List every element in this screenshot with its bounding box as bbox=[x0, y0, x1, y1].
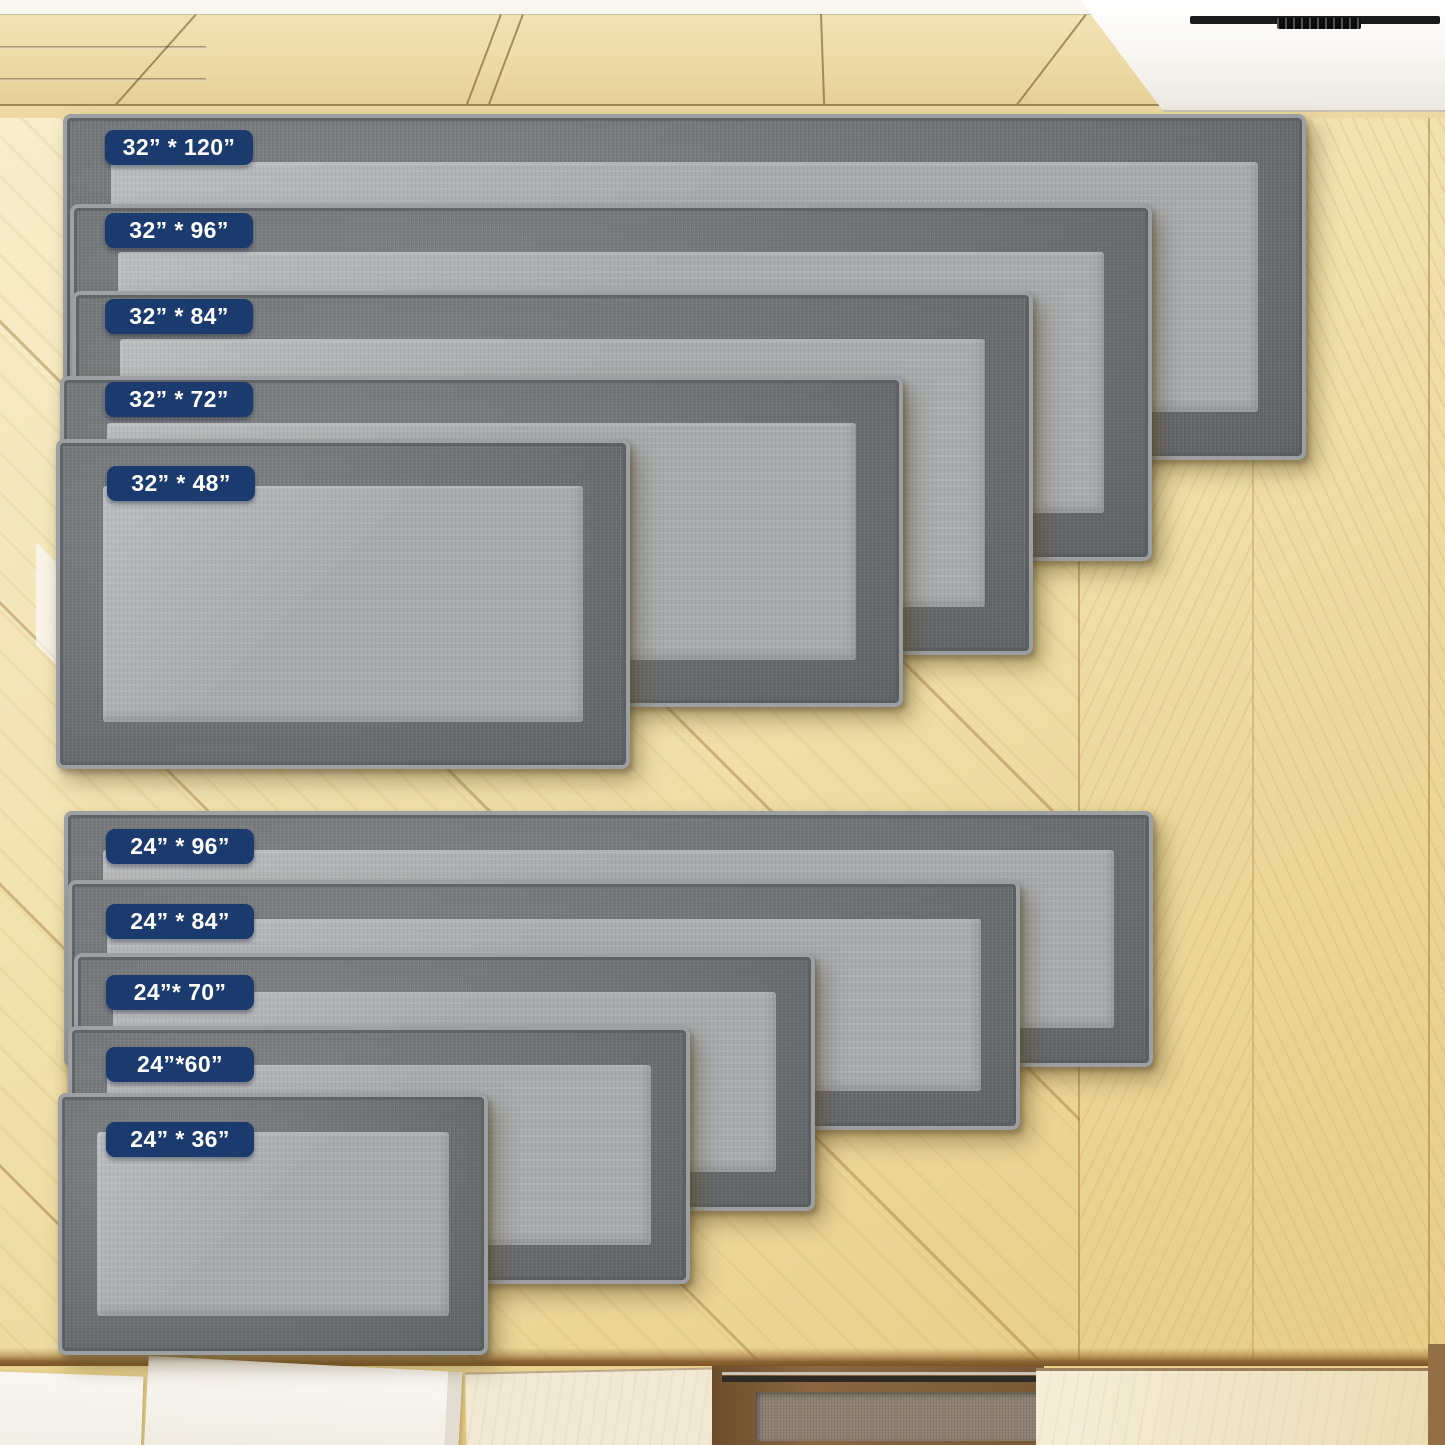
rug-size-chart-image: 32” * 120”32” * 96”32” * 84”32” * 72”32”… bbox=[0, 0, 1445, 1445]
rug-center bbox=[103, 486, 583, 722]
recess-track-gap bbox=[722, 1376, 1044, 1382]
cabinet-door-seam bbox=[820, 14, 825, 106]
rug-24x36: 24” * 36” bbox=[58, 1093, 488, 1355]
cabinet-door-seam bbox=[1010, 14, 1087, 114]
appliance-vent-grille bbox=[1277, 18, 1361, 29]
rug-center bbox=[97, 1132, 449, 1316]
size-badge: 32” * 72” bbox=[105, 382, 253, 417]
drawer-groove bbox=[0, 46, 206, 49]
size-badge: 24” * 96” bbox=[106, 829, 254, 864]
cabinet-door-seam bbox=[463, 14, 502, 113]
kitchen-cabinets bbox=[0, 0, 1445, 116]
size-badge: 24” * 84” bbox=[106, 904, 254, 939]
cream-floor-panel bbox=[465, 1367, 719, 1445]
size-badge: 24”*60” bbox=[106, 1047, 254, 1082]
size-badge: 24”* 70” bbox=[106, 975, 254, 1010]
wood-trim-strip bbox=[1428, 1344, 1445, 1445]
drawer-groove bbox=[0, 78, 206, 81]
size-badge: 32” * 84” bbox=[105, 299, 253, 334]
rug-32x48: 32” * 48” bbox=[56, 439, 630, 769]
size-badge: 32” * 48” bbox=[107, 466, 255, 501]
white-bench-panel bbox=[0, 1371, 143, 1445]
floor-plank-seam bbox=[1428, 110, 1430, 1445]
cream-platform-panel bbox=[1036, 1368, 1445, 1445]
size-badge: 32” * 96” bbox=[105, 213, 253, 248]
recess-mat bbox=[756, 1392, 1040, 1441]
size-badge: 32” * 120” bbox=[105, 130, 253, 165]
recess-metal-rail bbox=[722, 1372, 1044, 1375]
cabinet-door-seam bbox=[485, 14, 524, 113]
white-bench-panel bbox=[144, 1356, 463, 1445]
floor-recess-hatch bbox=[712, 1366, 1044, 1445]
cabinet-door-seam bbox=[108, 14, 196, 113]
size-badge: 24” * 36” bbox=[106, 1122, 254, 1157]
